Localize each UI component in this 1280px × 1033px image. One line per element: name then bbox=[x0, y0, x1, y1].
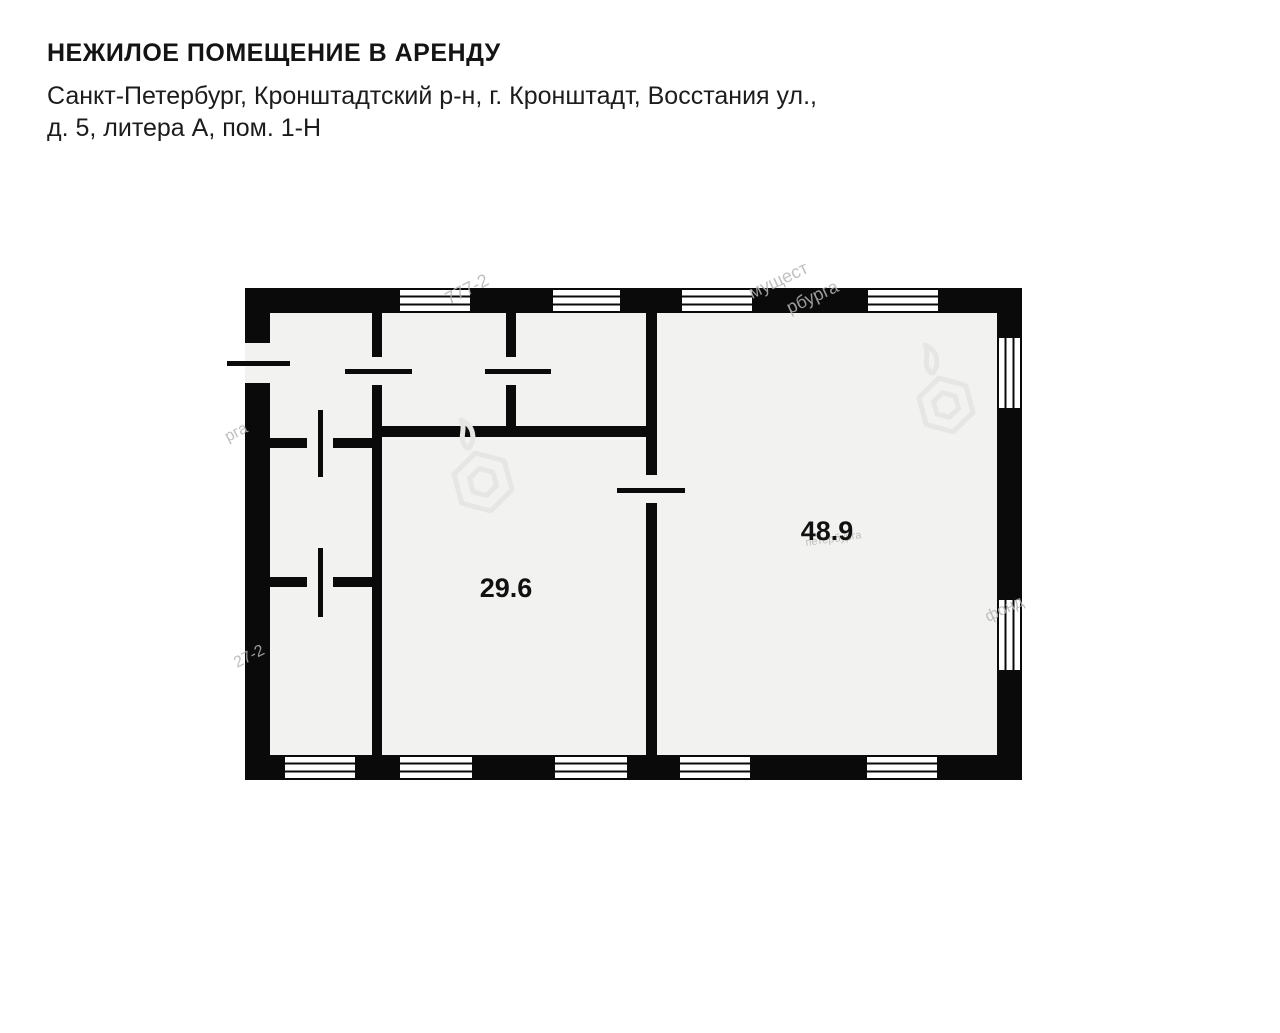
wall-segment bbox=[245, 383, 270, 780]
window-symbol bbox=[867, 755, 937, 780]
wall-segment bbox=[245, 288, 270, 343]
door-symbol bbox=[485, 369, 551, 374]
wall-segment bbox=[472, 755, 555, 780]
wall-segment bbox=[646, 313, 657, 475]
wall-segment bbox=[620, 288, 682, 313]
window-symbol bbox=[285, 755, 355, 780]
wall-segment bbox=[372, 426, 657, 437]
wall-segment bbox=[997, 670, 1022, 780]
window-symbol bbox=[553, 288, 620, 313]
wall-segment bbox=[506, 313, 516, 357]
window-symbol bbox=[400, 755, 472, 780]
wall-segment bbox=[646, 503, 657, 755]
wall-segment bbox=[627, 755, 680, 780]
door-symbol bbox=[345, 369, 412, 374]
wall-segment bbox=[506, 385, 516, 427]
window-symbol bbox=[682, 288, 752, 313]
window-symbol bbox=[555, 755, 627, 780]
floor-plan: 777-2 мущест рбурга рга 27-2 фонд петерб… bbox=[0, 0, 1280, 1033]
door-symbol bbox=[617, 488, 685, 493]
wall-segment bbox=[372, 313, 382, 357]
wall-segment bbox=[333, 438, 382, 448]
wall-segment bbox=[750, 755, 867, 780]
wall-segment bbox=[333, 577, 382, 587]
wall-segment bbox=[997, 408, 1022, 600]
page: НЕЖИЛОЕ ПОМЕЩЕНИЕ В АРЕНДУ Санкт-Петербу… bbox=[0, 0, 1280, 1033]
door-symbol bbox=[318, 410, 323, 477]
wall-segment bbox=[270, 438, 307, 448]
door-symbol bbox=[227, 361, 290, 366]
window-symbol bbox=[868, 288, 938, 313]
room-area-label: 29.6 bbox=[480, 573, 533, 603]
room-area-label: 48.9 bbox=[801, 516, 854, 546]
window-symbol bbox=[997, 338, 1022, 408]
plan-interior bbox=[245, 288, 1022, 780]
wall-segment bbox=[270, 577, 307, 587]
wall-segment bbox=[355, 755, 400, 780]
door-symbol bbox=[318, 548, 323, 617]
window-symbol bbox=[680, 755, 750, 780]
wall-segment bbox=[997, 288, 1022, 338]
